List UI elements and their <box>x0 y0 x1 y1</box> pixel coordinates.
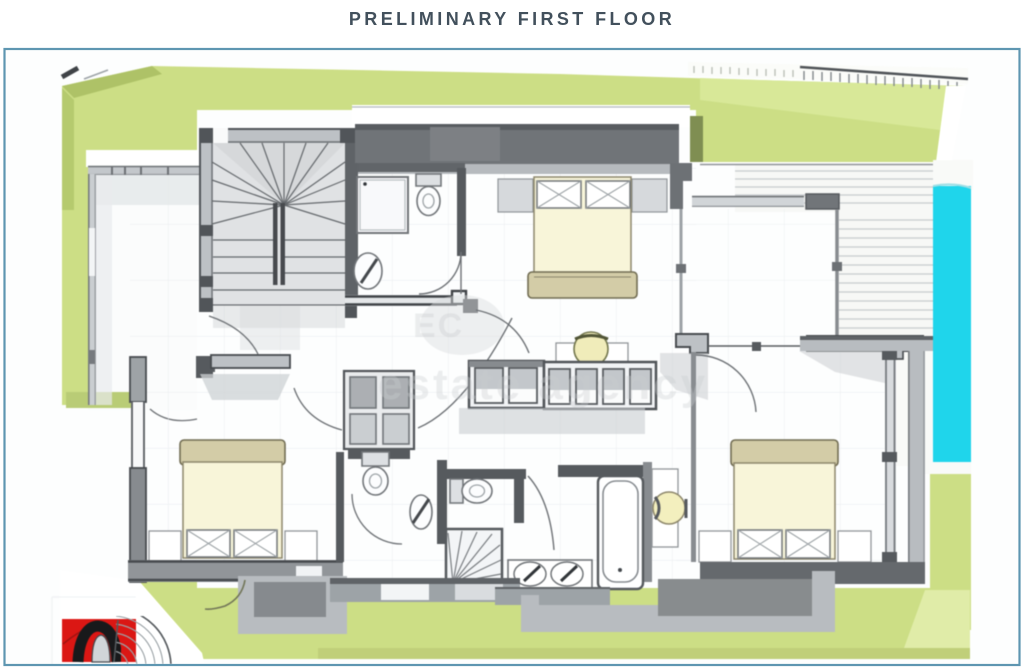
svg-text:EC: EC <box>413 307 464 345</box>
svg-text:estate agency: estate agency <box>378 360 708 409</box>
